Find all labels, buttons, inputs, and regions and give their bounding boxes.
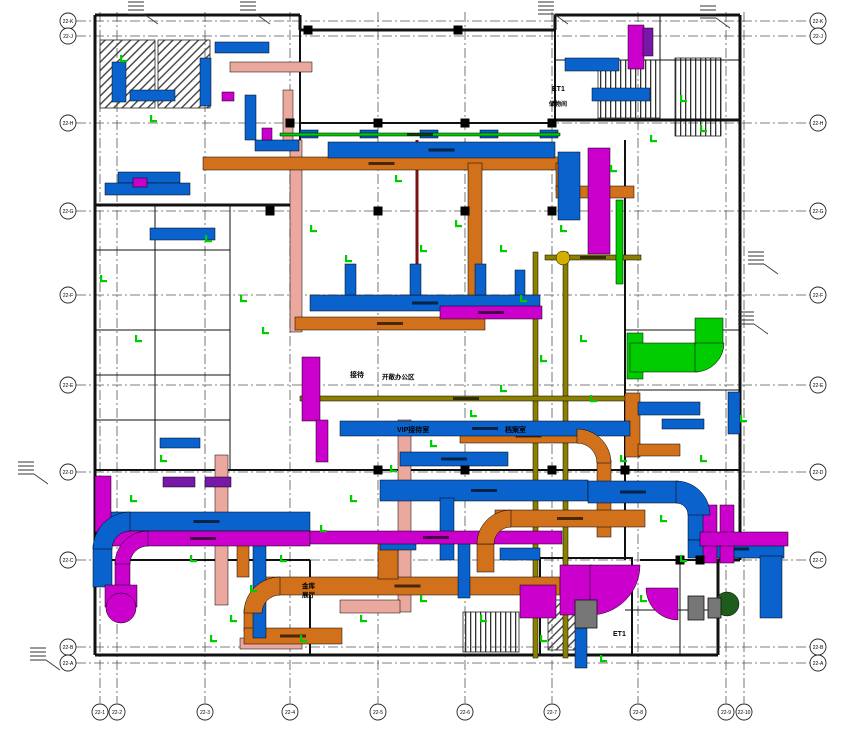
grid-bubble-label: 22-A bbox=[813, 661, 824, 667]
annotation-mark bbox=[210, 635, 212, 642]
column bbox=[286, 119, 295, 128]
duct-magenta bbox=[628, 25, 644, 69]
grid-bubble-label: 22-4 bbox=[285, 710, 295, 716]
duct-magenta bbox=[520, 585, 556, 618]
room-label: VIP接待室 bbox=[397, 425, 429, 434]
duct-size-label bbox=[369, 162, 395, 165]
equipment-box bbox=[708, 598, 721, 618]
duct-blue bbox=[130, 90, 175, 101]
annotation-mark bbox=[345, 255, 347, 262]
duct-blue bbox=[575, 628, 587, 668]
annotation-mark bbox=[160, 455, 162, 462]
annotation-mark bbox=[420, 245, 422, 252]
leader-line bbox=[716, 18, 730, 28]
duct-purple bbox=[205, 477, 231, 487]
duct-blue bbox=[728, 392, 740, 434]
annotation-mark bbox=[700, 125, 702, 132]
column bbox=[374, 466, 383, 475]
column bbox=[621, 466, 630, 475]
annotation-mark bbox=[560, 225, 562, 232]
annotation-mark bbox=[740, 415, 742, 422]
duct-size-label bbox=[580, 256, 606, 259]
leader-line bbox=[46, 660, 60, 670]
grid-bubble-label: 22-K bbox=[813, 19, 824, 25]
annotation-mark bbox=[540, 635, 542, 642]
column bbox=[374, 207, 383, 216]
column bbox=[461, 119, 470, 128]
duct-purple bbox=[163, 477, 195, 487]
duct-blue bbox=[458, 540, 470, 598]
duct-blue bbox=[105, 183, 190, 195]
grid-bubble-label: 22-E bbox=[813, 383, 824, 389]
annotation-mark bbox=[420, 595, 422, 602]
annotation-mark bbox=[620, 455, 622, 462]
annotation-mark bbox=[680, 95, 682, 102]
annotation-mark bbox=[230, 615, 232, 622]
duct-orange bbox=[477, 540, 494, 572]
grid-bubble-label: 22-G bbox=[812, 209, 823, 215]
annotation-mark bbox=[640, 595, 642, 602]
annotation-mark bbox=[520, 295, 522, 302]
grid-bubble-label: 22-C bbox=[813, 558, 824, 564]
annotation-mark bbox=[500, 385, 502, 392]
duct-blue bbox=[592, 88, 650, 101]
duct-pink bbox=[230, 62, 312, 72]
duct-elbow-blue bbox=[676, 481, 710, 515]
duct-elbow-magenta bbox=[646, 588, 678, 620]
duct-size-label bbox=[620, 491, 646, 494]
annotation-mark bbox=[600, 655, 602, 662]
annotation-mark bbox=[700, 455, 702, 462]
annotation-mark bbox=[680, 555, 682, 562]
annotation-mark bbox=[280, 555, 282, 562]
grid-bubble-label: 22-B bbox=[63, 645, 74, 651]
duct-size-label bbox=[453, 397, 479, 400]
room-label: 展厅 bbox=[301, 590, 316, 599]
annotation-mark bbox=[395, 175, 397, 182]
grid-bubble-label: 22-B bbox=[813, 645, 824, 651]
hvac-floorplan-drawing: 22-K22-K22-J22-J22-H22-H22-G22-G22-F22-F… bbox=[0, 0, 860, 736]
duct-blue bbox=[565, 58, 619, 71]
column bbox=[696, 556, 705, 565]
annotation-mark bbox=[590, 395, 592, 402]
duct-blue bbox=[760, 556, 782, 618]
grid-bubble-label: 22-1 bbox=[95, 710, 105, 716]
annotation-mark bbox=[120, 55, 122, 62]
annotation-mark bbox=[100, 275, 102, 282]
column bbox=[304, 26, 313, 35]
annotation-mark bbox=[240, 295, 242, 302]
duct-blue bbox=[475, 264, 486, 295]
leader-line bbox=[754, 324, 768, 334]
grid-bubble-label: 22-D bbox=[63, 470, 74, 476]
grid-bubble-label: 22-H bbox=[63, 121, 74, 127]
annotation-mark bbox=[470, 410, 472, 417]
annotation-mark bbox=[350, 495, 352, 502]
equipment-box bbox=[688, 596, 704, 620]
duct-magenta bbox=[222, 92, 234, 101]
grid-bubble-label: 22-5 bbox=[373, 710, 383, 716]
duct-orange bbox=[237, 545, 249, 577]
grid-bubble-label: 22-8 bbox=[633, 710, 643, 716]
leader-line bbox=[34, 474, 48, 484]
column bbox=[454, 26, 463, 35]
duct-green bbox=[630, 343, 698, 372]
duct-blue bbox=[215, 42, 269, 53]
duct-blue bbox=[558, 152, 580, 220]
duct-size-label bbox=[478, 311, 504, 314]
column bbox=[548, 466, 557, 475]
room-label: 金库 bbox=[301, 581, 316, 590]
room-label: 接待 bbox=[350, 370, 364, 379]
duct-blue bbox=[93, 545, 112, 587]
duct-size-label bbox=[472, 427, 498, 430]
column bbox=[461, 466, 470, 475]
equipment-box bbox=[575, 600, 597, 628]
grid-bubble-label: 22-7 bbox=[547, 710, 557, 716]
duct-magenta bbox=[133, 178, 147, 187]
annotation-mark bbox=[390, 465, 392, 472]
duct-magenta bbox=[302, 357, 320, 421]
grid-bubble-label: 22-E bbox=[63, 383, 74, 389]
grid-bubble-label: 22-K bbox=[63, 19, 74, 25]
duct-green bbox=[695, 318, 723, 346]
duct-size-label bbox=[441, 458, 467, 461]
duct-size-label bbox=[407, 133, 433, 136]
duct-magenta bbox=[700, 532, 788, 546]
duct-size-label bbox=[377, 322, 403, 325]
annotation-mark bbox=[650, 135, 652, 142]
grid-bubble-label: 22-D bbox=[813, 470, 824, 476]
duct-green bbox=[616, 200, 623, 284]
annotation-mark bbox=[480, 615, 482, 622]
duct-blue bbox=[345, 264, 356, 295]
grid-bubble-label: 22-F bbox=[63, 293, 73, 299]
grid-bubble-label: 22-A bbox=[63, 661, 74, 667]
grid-bubble-label: 22-6 bbox=[460, 710, 470, 716]
duct-magenta bbox=[316, 420, 328, 462]
room-label: ET1 bbox=[613, 631, 626, 638]
duct-blue bbox=[638, 402, 700, 415]
duct-size-label bbox=[423, 536, 449, 539]
annotation-mark bbox=[150, 115, 152, 122]
annotation-mark bbox=[310, 225, 312, 232]
duct-magenta bbox=[588, 148, 610, 254]
annotation-mark bbox=[660, 515, 662, 522]
duct-elbow-orange bbox=[244, 577, 280, 613]
duct-blue bbox=[410, 264, 421, 295]
annotation-mark bbox=[360, 615, 362, 622]
annotation-mark bbox=[580, 335, 582, 342]
annotation-mark bbox=[190, 555, 192, 562]
duct-size-label bbox=[471, 489, 497, 492]
duct-size-label bbox=[194, 520, 220, 523]
room-label: ET1 bbox=[552, 86, 565, 93]
annotation-mark bbox=[250, 585, 252, 592]
grid-bubble-label: 22-F bbox=[813, 293, 823, 299]
duct-size-label bbox=[412, 302, 438, 305]
room-label: 开敞办公区 bbox=[382, 372, 415, 381]
grid-bubble-label: 22-3 bbox=[200, 710, 210, 716]
room-label: 档案室 bbox=[504, 425, 526, 434]
grid-bubble-label: 22-9 bbox=[721, 710, 731, 716]
leader-line bbox=[764, 264, 778, 274]
annotation-mark bbox=[320, 525, 322, 532]
column bbox=[548, 119, 557, 128]
annotation-mark bbox=[300, 635, 302, 642]
floorplan-canvas: 22-K22-K22-J22-J22-H22-H22-G22-G22-F22-F… bbox=[0, 0, 860, 736]
duct-size-label bbox=[395, 585, 421, 588]
annotation-mark bbox=[540, 355, 542, 362]
duct-blue bbox=[500, 548, 540, 560]
duct-elbow-green bbox=[695, 343, 724, 372]
annotation-mark bbox=[262, 327, 264, 334]
fitting-circle bbox=[106, 593, 136, 623]
duct-size-label bbox=[557, 517, 583, 520]
column bbox=[374, 119, 383, 128]
duct-magenta bbox=[262, 128, 272, 140]
duct-blue bbox=[255, 140, 299, 151]
annotation-mark bbox=[205, 235, 207, 242]
duct-blue bbox=[245, 95, 256, 140]
grid-bubble-label: 22-2 bbox=[112, 710, 122, 716]
fitting-circle bbox=[556, 251, 570, 265]
duct-orange bbox=[638, 444, 680, 456]
duct-blue bbox=[118, 172, 180, 183]
grid-bubble-label: 22-G bbox=[62, 209, 73, 215]
duct-size-label bbox=[429, 149, 455, 152]
duct-blue bbox=[440, 498, 454, 560]
annotation-mark bbox=[135, 335, 137, 342]
grid-bubble-label: 22-H bbox=[813, 121, 824, 127]
room-label: 储物间 bbox=[548, 100, 567, 108]
grid-bubble-label: 22-J bbox=[813, 34, 823, 40]
column bbox=[548, 207, 557, 216]
duct-blue bbox=[515, 270, 525, 295]
duct-pink bbox=[340, 600, 400, 613]
grid-bubble-label: 22-C bbox=[63, 558, 74, 564]
duct-blue bbox=[200, 58, 211, 106]
column bbox=[461, 207, 470, 216]
grid-bubble-label: 22-J bbox=[63, 34, 73, 40]
annotation-mark bbox=[610, 165, 612, 172]
duct-size-label bbox=[190, 537, 216, 540]
shaft-hatch bbox=[463, 612, 519, 652]
annotation-mark bbox=[130, 495, 132, 502]
duct-blue bbox=[112, 62, 126, 102]
grid-bubble-label: 22-10 bbox=[738, 710, 751, 716]
duct-purple bbox=[643, 28, 653, 56]
column bbox=[266, 207, 275, 216]
duct-blue bbox=[662, 419, 704, 429]
duct-blue bbox=[160, 438, 200, 448]
annotation-mark bbox=[500, 245, 502, 252]
annotation-mark bbox=[430, 440, 432, 447]
annotation-mark bbox=[455, 220, 457, 227]
